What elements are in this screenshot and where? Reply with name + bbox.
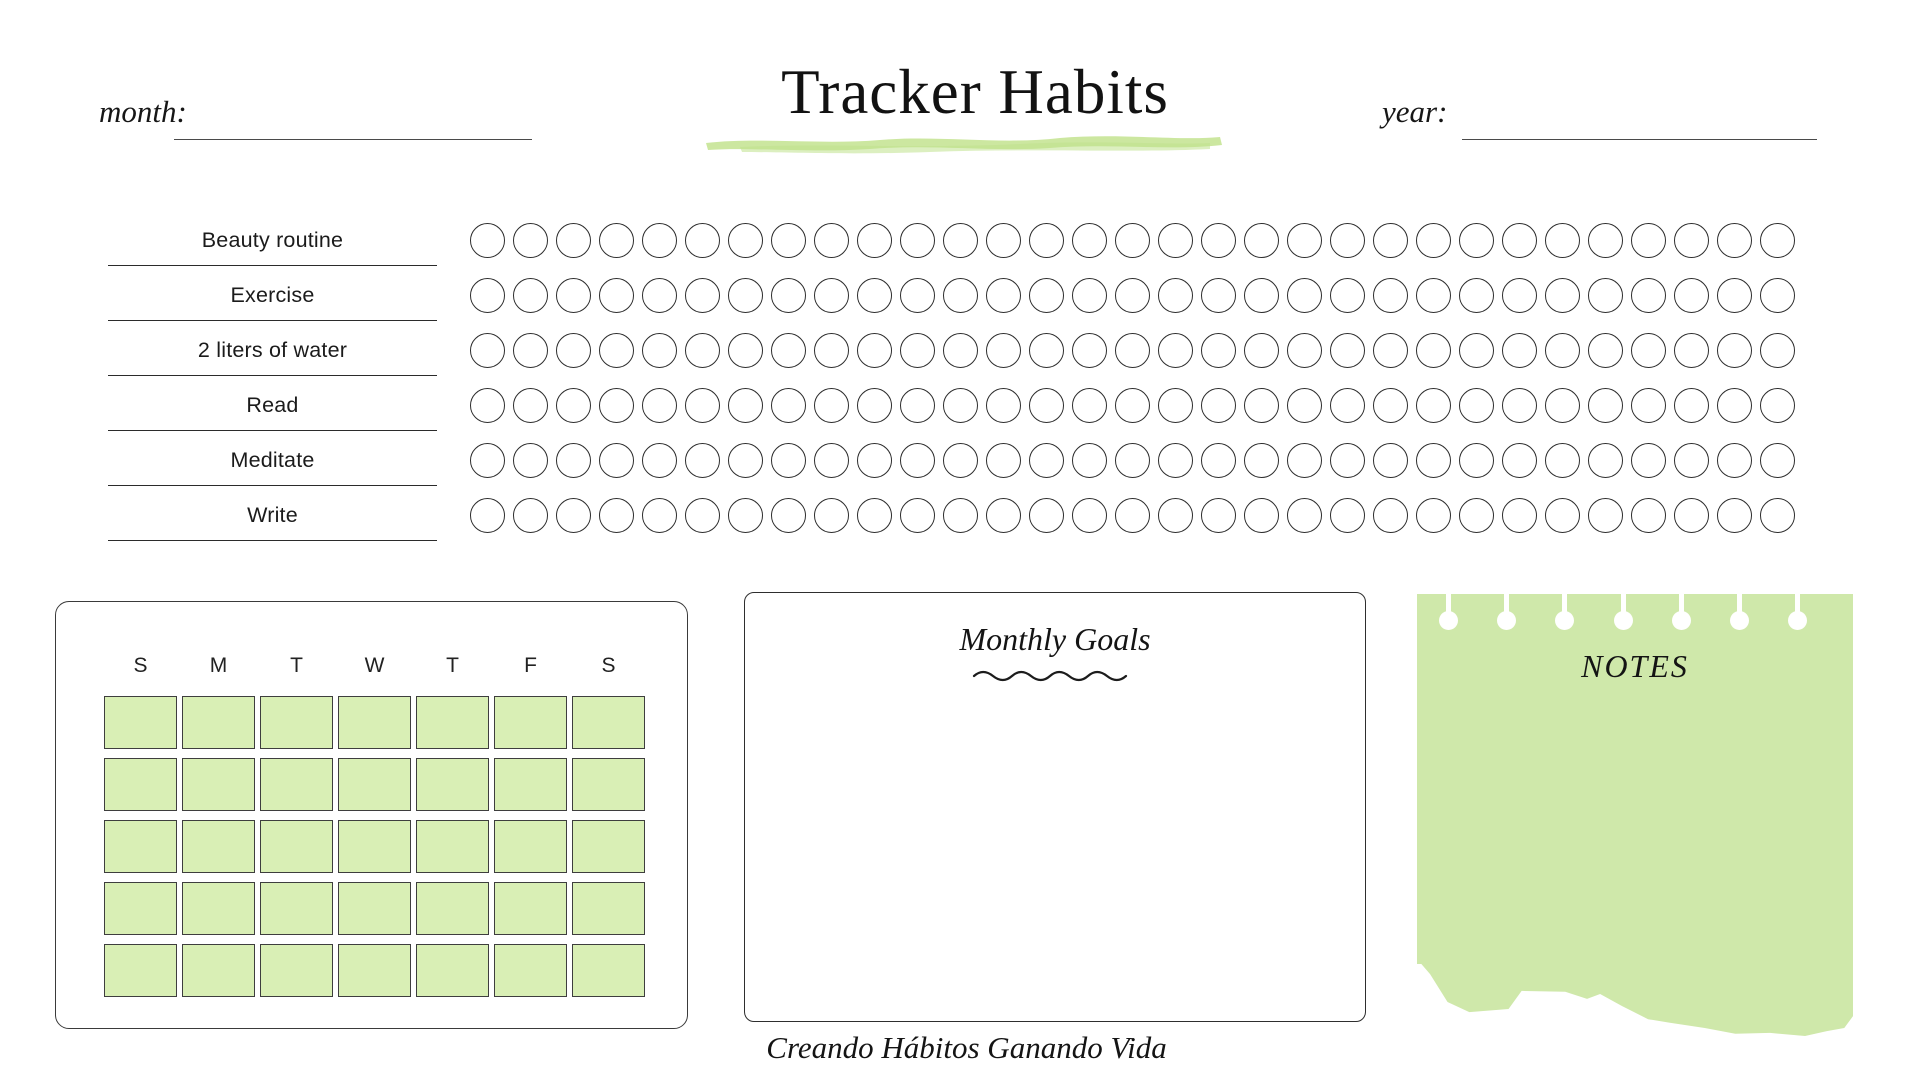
day-circle[interactable] — [771, 498, 806, 533]
day-circle[interactable] — [1201, 333, 1236, 368]
day-circle[interactable] — [556, 443, 591, 478]
day-circle[interactable] — [642, 443, 677, 478]
day-circle[interactable] — [943, 278, 978, 313]
calendar-day-cell[interactable] — [182, 696, 255, 749]
calendar-day-cell[interactable] — [260, 944, 333, 997]
habit-label: Beauty routine — [202, 228, 343, 253]
day-circle[interactable] — [1760, 443, 1795, 478]
day-circle[interactable] — [1244, 223, 1279, 258]
calendar-week-row — [104, 696, 645, 749]
day-of-week-label: M — [182, 654, 255, 678]
calendar-week-row — [104, 758, 645, 811]
day-circle[interactable] — [1717, 498, 1752, 533]
day-circle[interactable] — [1459, 498, 1494, 533]
day-circle[interactable] — [1631, 388, 1666, 423]
calendar-day-cell[interactable] — [494, 696, 567, 749]
day-circle[interactable] — [1330, 388, 1365, 423]
day-circle[interactable] — [1287, 443, 1322, 478]
day-circle[interactable] — [728, 498, 763, 533]
day-circle[interactable] — [1201, 278, 1236, 313]
day-circle[interactable] — [943, 498, 978, 533]
calendar-day-cell[interactable] — [260, 882, 333, 935]
day-circle[interactable] — [1287, 333, 1322, 368]
day-circle[interactable] — [728, 333, 763, 368]
habit-label-underline: Exercise — [108, 271, 437, 321]
day-of-week-label: S — [104, 654, 177, 678]
calendar-day-cell[interactable] — [338, 944, 411, 997]
calendar-day-cell[interactable] — [260, 696, 333, 749]
day-circle[interactable] — [1287, 498, 1322, 533]
day-circle[interactable] — [1717, 388, 1752, 423]
day-circle[interactable] — [599, 223, 634, 258]
punch-hole-icon — [1555, 611, 1574, 630]
day-circle[interactable] — [1416, 388, 1451, 423]
day-circle[interactable] — [1502, 333, 1537, 368]
page-title: Tracker Habits — [781, 56, 1169, 129]
day-circle[interactable] — [857, 443, 892, 478]
day-circle[interactable] — [1760, 278, 1795, 313]
notes-paper[interactable]: NOTES — [1417, 594, 1853, 1036]
day-circle[interactable] — [685, 278, 720, 313]
day-circle[interactable] — [900, 278, 935, 313]
calendar-day-cell[interactable] — [104, 944, 177, 997]
day-circle[interactable] — [1373, 388, 1408, 423]
day-circle[interactable] — [1416, 333, 1451, 368]
habit-row: Read — [0, 381, 1920, 435]
day-circle[interactable] — [943, 388, 978, 423]
day-circle[interactable] — [470, 388, 505, 423]
habit-label: Exercise — [230, 283, 314, 308]
day-circle[interactable] — [1631, 443, 1666, 478]
day-circle[interactable] — [1459, 223, 1494, 258]
day-circle[interactable] — [1717, 333, 1752, 368]
day-circle[interactable] — [1545, 223, 1580, 258]
footer-quote: Creando Hábitos Ganando Vida — [744, 1030, 1189, 1066]
notes-title: NOTES — [1581, 648, 1689, 685]
day-circle[interactable] — [1244, 333, 1279, 368]
day-circle[interactable] — [1631, 333, 1666, 368]
day-circle[interactable] — [556, 388, 591, 423]
calendar-day-cell[interactable] — [494, 944, 567, 997]
day-circle[interactable] — [1416, 223, 1451, 258]
day-circle[interactable] — [986, 333, 1021, 368]
calendar-day-cell[interactable] — [338, 758, 411, 811]
calendar-day-cell[interactable] — [182, 944, 255, 997]
day-circle[interactable] — [1502, 498, 1537, 533]
calendar-day-cell[interactable] — [572, 820, 645, 873]
calendar-week-row — [104, 820, 645, 873]
day-circle[interactable] — [642, 223, 677, 258]
day-circle[interactable] — [857, 388, 892, 423]
day-circle[interactable] — [1760, 223, 1795, 258]
day-circle[interactable] — [1287, 223, 1322, 258]
calendar-day-cell[interactable] — [494, 820, 567, 873]
mini-calendar: SMTWTFS — [55, 601, 688, 1029]
day-circle[interactable] — [1717, 278, 1752, 313]
habit-label: Write — [247, 503, 298, 528]
day-circle[interactable] — [1373, 223, 1408, 258]
day-circle[interactable] — [685, 223, 720, 258]
day-circle[interactable] — [1502, 388, 1537, 423]
day-circle[interactable] — [1072, 443, 1107, 478]
day-circle[interactable] — [1459, 278, 1494, 313]
day-circle[interactable] — [1201, 388, 1236, 423]
day-circle[interactable] — [728, 278, 763, 313]
day-circle[interactable] — [1201, 223, 1236, 258]
calendar-day-cell[interactable] — [182, 882, 255, 935]
day-circle[interactable] — [1201, 443, 1236, 478]
day-circle[interactable] — [1416, 278, 1451, 313]
day-circle-strip — [470, 388, 1795, 423]
day-circle[interactable] — [1674, 223, 1709, 258]
day-of-week-label: F — [494, 654, 567, 678]
day-circle[interactable] — [513, 278, 548, 313]
day-circle[interactable] — [1072, 223, 1107, 258]
day-circle[interactable] — [1588, 388, 1623, 423]
day-circle[interactable] — [1631, 498, 1666, 533]
day-circle[interactable] — [900, 223, 935, 258]
day-circle[interactable] — [814, 443, 849, 478]
day-circle[interactable] — [1588, 333, 1623, 368]
calendar-day-cell[interactable] — [572, 758, 645, 811]
day-circle[interactable] — [642, 333, 677, 368]
day-circle[interactable] — [900, 333, 935, 368]
calendar-day-cell[interactable] — [260, 758, 333, 811]
day-circle[interactable] — [1545, 388, 1580, 423]
day-circle[interactable] — [599, 333, 634, 368]
habit-label: 2 liters of water — [198, 338, 347, 363]
day-circle[interactable] — [1072, 498, 1107, 533]
calendar-day-cell[interactable] — [260, 820, 333, 873]
day-circle[interactable] — [1717, 443, 1752, 478]
day-circle[interactable] — [771, 333, 806, 368]
squiggle-underline-icon — [971, 667, 1139, 683]
day-circle[interactable] — [1674, 443, 1709, 478]
day-circle[interactable] — [857, 498, 892, 533]
day-of-week-header-row: SMTWTFS — [104, 654, 645, 678]
day-of-week-label: T — [260, 654, 333, 678]
day-circle[interactable] — [1029, 278, 1064, 313]
punch-hole-icon — [1672, 611, 1691, 630]
day-circle[interactable] — [1588, 278, 1623, 313]
day-circle[interactable] — [1115, 278, 1150, 313]
day-circle[interactable] — [513, 333, 548, 368]
day-circle[interactable] — [513, 443, 548, 478]
punch-hole-icon — [1730, 611, 1749, 630]
day-circle[interactable] — [642, 498, 677, 533]
day-circle-strip — [470, 223, 1795, 258]
punch-hole-icon — [1788, 611, 1807, 630]
day-circle[interactable] — [1545, 443, 1580, 478]
calendar-day-cell[interactable] — [494, 758, 567, 811]
day-circle[interactable] — [642, 278, 677, 313]
day-circle[interactable] — [1674, 388, 1709, 423]
day-circle[interactable] — [986, 388, 1021, 423]
day-circle[interactable] — [1545, 278, 1580, 313]
day-circle[interactable] — [1502, 443, 1537, 478]
day-circle[interactable] — [513, 498, 548, 533]
day-circle[interactable] — [1416, 443, 1451, 478]
day-circle[interactable] — [1244, 388, 1279, 423]
habit-label: Meditate — [230, 448, 314, 473]
day-circle[interactable] — [1545, 498, 1580, 533]
day-circle[interactable] — [1029, 443, 1064, 478]
monthly-goals-box[interactable]: Monthly Goals — [744, 592, 1366, 1022]
calendar-day-cell[interactable] — [572, 882, 645, 935]
calendar-day-cell[interactable] — [338, 696, 411, 749]
day-circle[interactable] — [556, 498, 591, 533]
day-circle[interactable] — [470, 223, 505, 258]
day-circle[interactable] — [685, 388, 720, 423]
day-circle[interactable] — [1029, 498, 1064, 533]
day-circle[interactable] — [900, 388, 935, 423]
calendar-day-cell[interactable] — [416, 758, 489, 811]
habit-row: Beauty routine — [0, 216, 1920, 270]
habit-row: Meditate — [0, 436, 1920, 490]
day-circle[interactable] — [556, 333, 591, 368]
calendar-day-cell[interactable] — [104, 820, 177, 873]
day-circle[interactable] — [1459, 388, 1494, 423]
day-circle[interactable] — [900, 498, 935, 533]
day-circle[interactable] — [1545, 333, 1580, 368]
day-circle[interactable] — [685, 498, 720, 533]
day-circle[interactable] — [1631, 223, 1666, 258]
day-circle[interactable] — [1459, 443, 1494, 478]
day-circle[interactable] — [1588, 443, 1623, 478]
calendar-day-cell[interactable] — [104, 882, 177, 935]
day-circle[interactable] — [900, 443, 935, 478]
day-circle[interactable] — [857, 278, 892, 313]
day-circle[interactable] — [599, 278, 634, 313]
day-circle[interactable] — [857, 223, 892, 258]
calendar-day-cell[interactable] — [416, 696, 489, 749]
day-circle-strip — [470, 333, 1795, 368]
day-circle[interactable] — [943, 333, 978, 368]
day-circle[interactable] — [814, 388, 849, 423]
day-circle[interactable] — [1760, 388, 1795, 423]
day-circle[interactable] — [943, 443, 978, 478]
day-of-week-label: S — [572, 654, 645, 678]
day-circle[interactable] — [728, 388, 763, 423]
day-circle[interactable] — [513, 388, 548, 423]
day-circle[interactable] — [1072, 388, 1107, 423]
day-circle[interactable] — [1115, 443, 1150, 478]
monthly-goals-title: Monthly Goals — [959, 621, 1150, 658]
habit-label-underline: Meditate — [108, 436, 437, 486]
day-circle[interactable] — [1158, 333, 1193, 368]
day-circle[interactable] — [1158, 443, 1193, 478]
day-circle[interactable] — [986, 498, 1021, 533]
day-circle[interactable] — [1244, 498, 1279, 533]
day-circle[interactable] — [1373, 443, 1408, 478]
habit-label: Read — [246, 393, 298, 418]
day-circle[interactable] — [814, 223, 849, 258]
day-circle[interactable] — [1674, 278, 1709, 313]
day-circle[interactable] — [728, 443, 763, 478]
day-circle[interactable] — [1760, 333, 1795, 368]
day-circle[interactable] — [599, 443, 634, 478]
habit-row: Write — [0, 491, 1920, 545]
day-circle[interactable] — [1330, 223, 1365, 258]
year-label: year: — [1382, 94, 1447, 130]
day-circle[interactable] — [1330, 333, 1365, 368]
day-circle[interactable] — [1029, 223, 1064, 258]
habit-tracker-page: month: Tracker Habits year: Beauty routi… — [0, 0, 1920, 1080]
habit-row: Exercise — [0, 271, 1920, 325]
habit-label-underline: Read — [108, 381, 437, 431]
day-circle[interactable] — [1158, 498, 1193, 533]
calendar-day-cell[interactable] — [416, 882, 489, 935]
calendar-week-row — [104, 882, 645, 935]
day-circle[interactable] — [1416, 498, 1451, 533]
habit-label-underline: 2 liters of water — [108, 326, 437, 376]
day-circle[interactable] — [642, 388, 677, 423]
day-circle[interactable] — [1373, 278, 1408, 313]
calendar-day-cell[interactable] — [416, 820, 489, 873]
day-circle[interactable] — [1287, 388, 1322, 423]
day-circle[interactable] — [599, 388, 634, 423]
day-circle[interactable] — [943, 223, 978, 258]
title-highlight-stroke — [700, 127, 1225, 159]
day-circle[interactable] — [1330, 278, 1365, 313]
punch-hole-icon — [1614, 611, 1633, 630]
calendar-week-row — [104, 944, 645, 997]
day-circle[interactable] — [1201, 498, 1236, 533]
day-circle[interactable] — [1631, 278, 1666, 313]
day-of-week-label: T — [416, 654, 489, 678]
day-circle[interactable] — [1115, 498, 1150, 533]
day-circle[interactable] — [685, 443, 720, 478]
day-circle[interactable] — [1029, 388, 1064, 423]
day-circle[interactable] — [1760, 498, 1795, 533]
day-circle[interactable] — [1115, 388, 1150, 423]
day-circle[interactable] — [1158, 223, 1193, 258]
day-circle[interactable] — [986, 223, 1021, 258]
day-circle[interactable] — [1502, 278, 1537, 313]
calendar-day-cell[interactable] — [572, 944, 645, 997]
day-circle[interactable] — [771, 223, 806, 258]
day-circle[interactable] — [1029, 333, 1064, 368]
day-circle-strip — [470, 443, 1795, 478]
calendar-grid — [104, 696, 645, 997]
day-circle[interactable] — [513, 223, 548, 258]
day-circle[interactable] — [1674, 333, 1709, 368]
habit-row: 2 liters of water — [0, 326, 1920, 380]
day-circle[interactable] — [556, 278, 591, 313]
day-circle[interactable] — [685, 333, 720, 368]
day-circle[interactable] — [1373, 498, 1408, 533]
day-circle[interactable] — [1674, 498, 1709, 533]
day-circle[interactable] — [857, 333, 892, 368]
day-circle[interactable] — [771, 388, 806, 423]
day-circle[interactable] — [986, 278, 1021, 313]
calendar-day-cell[interactable] — [182, 820, 255, 873]
calendar-day-cell[interactable] — [494, 882, 567, 935]
day-circle[interactable] — [599, 498, 634, 533]
day-circle[interactable] — [470, 498, 505, 533]
day-circle[interactable] — [470, 278, 505, 313]
year-input-line[interactable] — [1462, 139, 1817, 140]
day-circle[interactable] — [1330, 443, 1365, 478]
day-circle[interactable] — [814, 278, 849, 313]
day-circle[interactable] — [1330, 498, 1365, 533]
day-circle[interactable] — [986, 443, 1021, 478]
day-circle[interactable] — [814, 333, 849, 368]
day-circle[interactable] — [1244, 278, 1279, 313]
day-circle[interactable] — [728, 223, 763, 258]
day-circle[interactable] — [470, 333, 505, 368]
day-circle[interactable] — [1158, 278, 1193, 313]
day-circle[interactable] — [1588, 498, 1623, 533]
calendar-day-cell[interactable] — [338, 882, 411, 935]
day-circle[interactable] — [1717, 223, 1752, 258]
day-circle[interactable] — [1115, 333, 1150, 368]
calendar-day-cell[interactable] — [338, 820, 411, 873]
day-of-week-label: W — [338, 654, 411, 678]
day-circle[interactable] — [1072, 333, 1107, 368]
day-circle[interactable] — [1072, 278, 1107, 313]
day-circle-strip — [470, 278, 1795, 313]
punch-hole-icon — [1497, 611, 1516, 630]
habit-label-underline: Write — [108, 491, 437, 541]
day-circle[interactable] — [470, 443, 505, 478]
calendar-day-cell[interactable] — [104, 696, 177, 749]
month-label: month: — [99, 94, 187, 130]
day-circle[interactable] — [1115, 223, 1150, 258]
day-circle[interactable] — [1588, 223, 1623, 258]
calendar-day-cell[interactable] — [104, 758, 177, 811]
day-circle[interactable] — [556, 223, 591, 258]
day-circle[interactable] — [1459, 333, 1494, 368]
day-circle[interactable] — [771, 443, 806, 478]
calendar-day-cell[interactable] — [572, 696, 645, 749]
day-circle[interactable] — [1373, 333, 1408, 368]
month-input-line[interactable] — [174, 139, 532, 140]
day-circle-strip — [470, 498, 1795, 533]
day-circle[interactable] — [1502, 223, 1537, 258]
day-circle[interactable] — [814, 498, 849, 533]
habit-label-underline: Beauty routine — [108, 216, 437, 266]
day-circle[interactable] — [1287, 278, 1322, 313]
day-circle[interactable] — [771, 278, 806, 313]
calendar-day-cell[interactable] — [182, 758, 255, 811]
day-circle[interactable] — [1244, 443, 1279, 478]
calendar-day-cell[interactable] — [416, 944, 489, 997]
day-circle[interactable] — [1158, 388, 1193, 423]
punch-hole-icon — [1439, 611, 1458, 630]
